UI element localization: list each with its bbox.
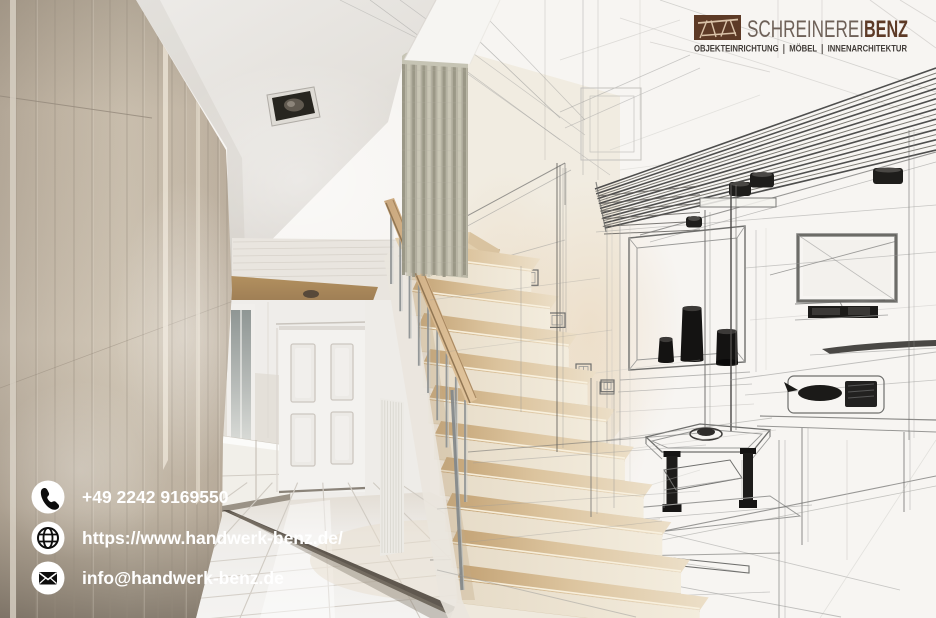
- svg-text:OBJEKTEINRICHTUNG ❘ MÖBEL ❘ IN: OBJEKTEINRICHTUNG ❘ MÖBEL ❘ INNENARCHITE…: [694, 44, 907, 55]
- svg-text:SCHREINEREI: SCHREINEREI: [747, 16, 864, 43]
- svg-text:https://www.handwerk-benz.de/: https://www.handwerk-benz.de/: [82, 528, 343, 548]
- svg-text:info@handwerk-benz.de: info@handwerk-benz.de: [82, 568, 284, 588]
- svg-text:+49 2242 9169550: +49 2242 9169550: [82, 487, 229, 507]
- svg-text:BENZ: BENZ: [864, 16, 908, 43]
